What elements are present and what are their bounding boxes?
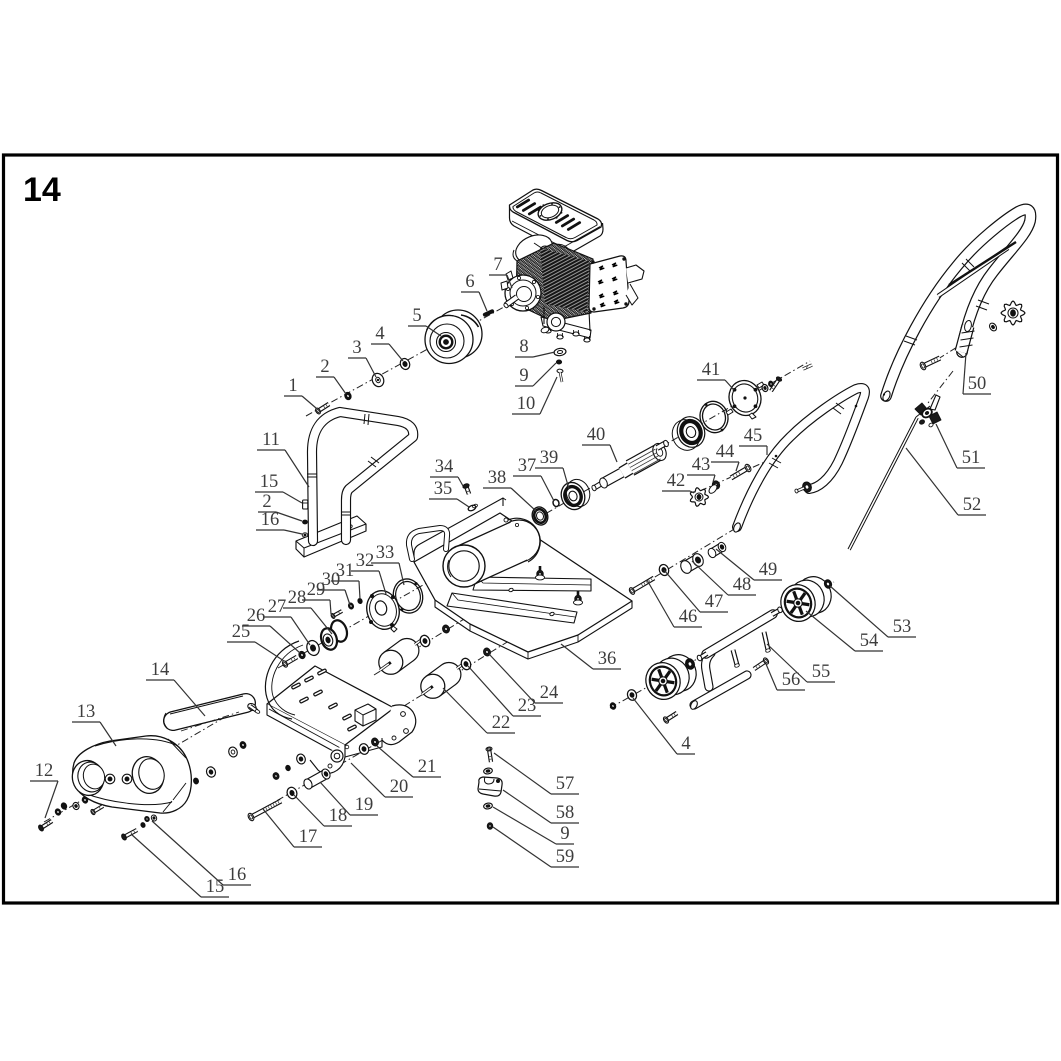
svg-text:37: 37: [518, 456, 537, 476]
svg-text:27: 27: [268, 597, 287, 617]
svg-text:32: 32: [356, 551, 375, 571]
svg-text:35: 35: [434, 479, 453, 499]
svg-text:44: 44: [716, 442, 735, 462]
svg-text:18: 18: [329, 806, 348, 826]
svg-text:52: 52: [963, 495, 982, 515]
svg-text:14: 14: [23, 171, 61, 209]
svg-text:56: 56: [782, 670, 801, 690]
svg-text:46: 46: [679, 607, 698, 627]
svg-text:51: 51: [962, 448, 981, 468]
svg-text:49: 49: [759, 560, 778, 580]
svg-text:53: 53: [893, 617, 912, 637]
svg-text:14: 14: [151, 660, 170, 680]
svg-text:33: 33: [376, 543, 395, 563]
svg-text:17: 17: [299, 827, 318, 847]
svg-text:28: 28: [288, 588, 307, 608]
svg-text:9: 9: [519, 366, 528, 386]
svg-text:1: 1: [288, 376, 297, 396]
svg-text:3: 3: [352, 338, 361, 358]
svg-text:4: 4: [375, 324, 384, 344]
svg-text:48: 48: [733, 575, 752, 595]
svg-text:6: 6: [465, 272, 474, 292]
svg-text:36: 36: [598, 649, 617, 669]
svg-text:13: 13: [77, 702, 96, 722]
svg-text:41: 41: [702, 360, 721, 380]
svg-text:50: 50: [968, 374, 987, 394]
svg-text:58: 58: [556, 803, 575, 823]
svg-text:23: 23: [518, 696, 537, 716]
svg-text:16: 16: [261, 510, 280, 530]
svg-text:19: 19: [355, 795, 374, 815]
svg-text:15: 15: [260, 472, 279, 492]
svg-text:16: 16: [228, 865, 247, 885]
svg-text:43: 43: [692, 455, 711, 475]
svg-text:34: 34: [435, 457, 454, 477]
svg-text:39: 39: [540, 448, 559, 468]
svg-text:10: 10: [517, 394, 536, 414]
svg-text:15: 15: [206, 877, 225, 897]
svg-text:54: 54: [860, 631, 879, 651]
svg-text:9: 9: [560, 824, 569, 844]
svg-text:57: 57: [556, 774, 575, 794]
svg-text:45: 45: [744, 426, 763, 446]
svg-text:25: 25: [232, 622, 251, 642]
svg-text:42: 42: [667, 471, 686, 491]
svg-text:4: 4: [681, 734, 690, 754]
svg-text:5: 5: [412, 306, 421, 326]
svg-text:59: 59: [556, 847, 575, 867]
svg-text:47: 47: [705, 592, 724, 612]
svg-text:55: 55: [812, 662, 831, 682]
svg-text:38: 38: [488, 468, 507, 488]
svg-text:8: 8: [519, 337, 528, 357]
svg-text:40: 40: [587, 425, 606, 445]
svg-text:2: 2: [320, 357, 329, 377]
svg-text:7: 7: [493, 255, 502, 275]
svg-text:12: 12: [35, 761, 54, 781]
svg-text:21: 21: [418, 757, 437, 777]
svg-text:22: 22: [492, 713, 511, 733]
svg-text:2: 2: [262, 492, 271, 512]
svg-text:11: 11: [262, 430, 280, 450]
svg-text:29: 29: [307, 580, 326, 600]
svg-text:24: 24: [540, 683, 559, 703]
svg-text:20: 20: [390, 777, 409, 797]
